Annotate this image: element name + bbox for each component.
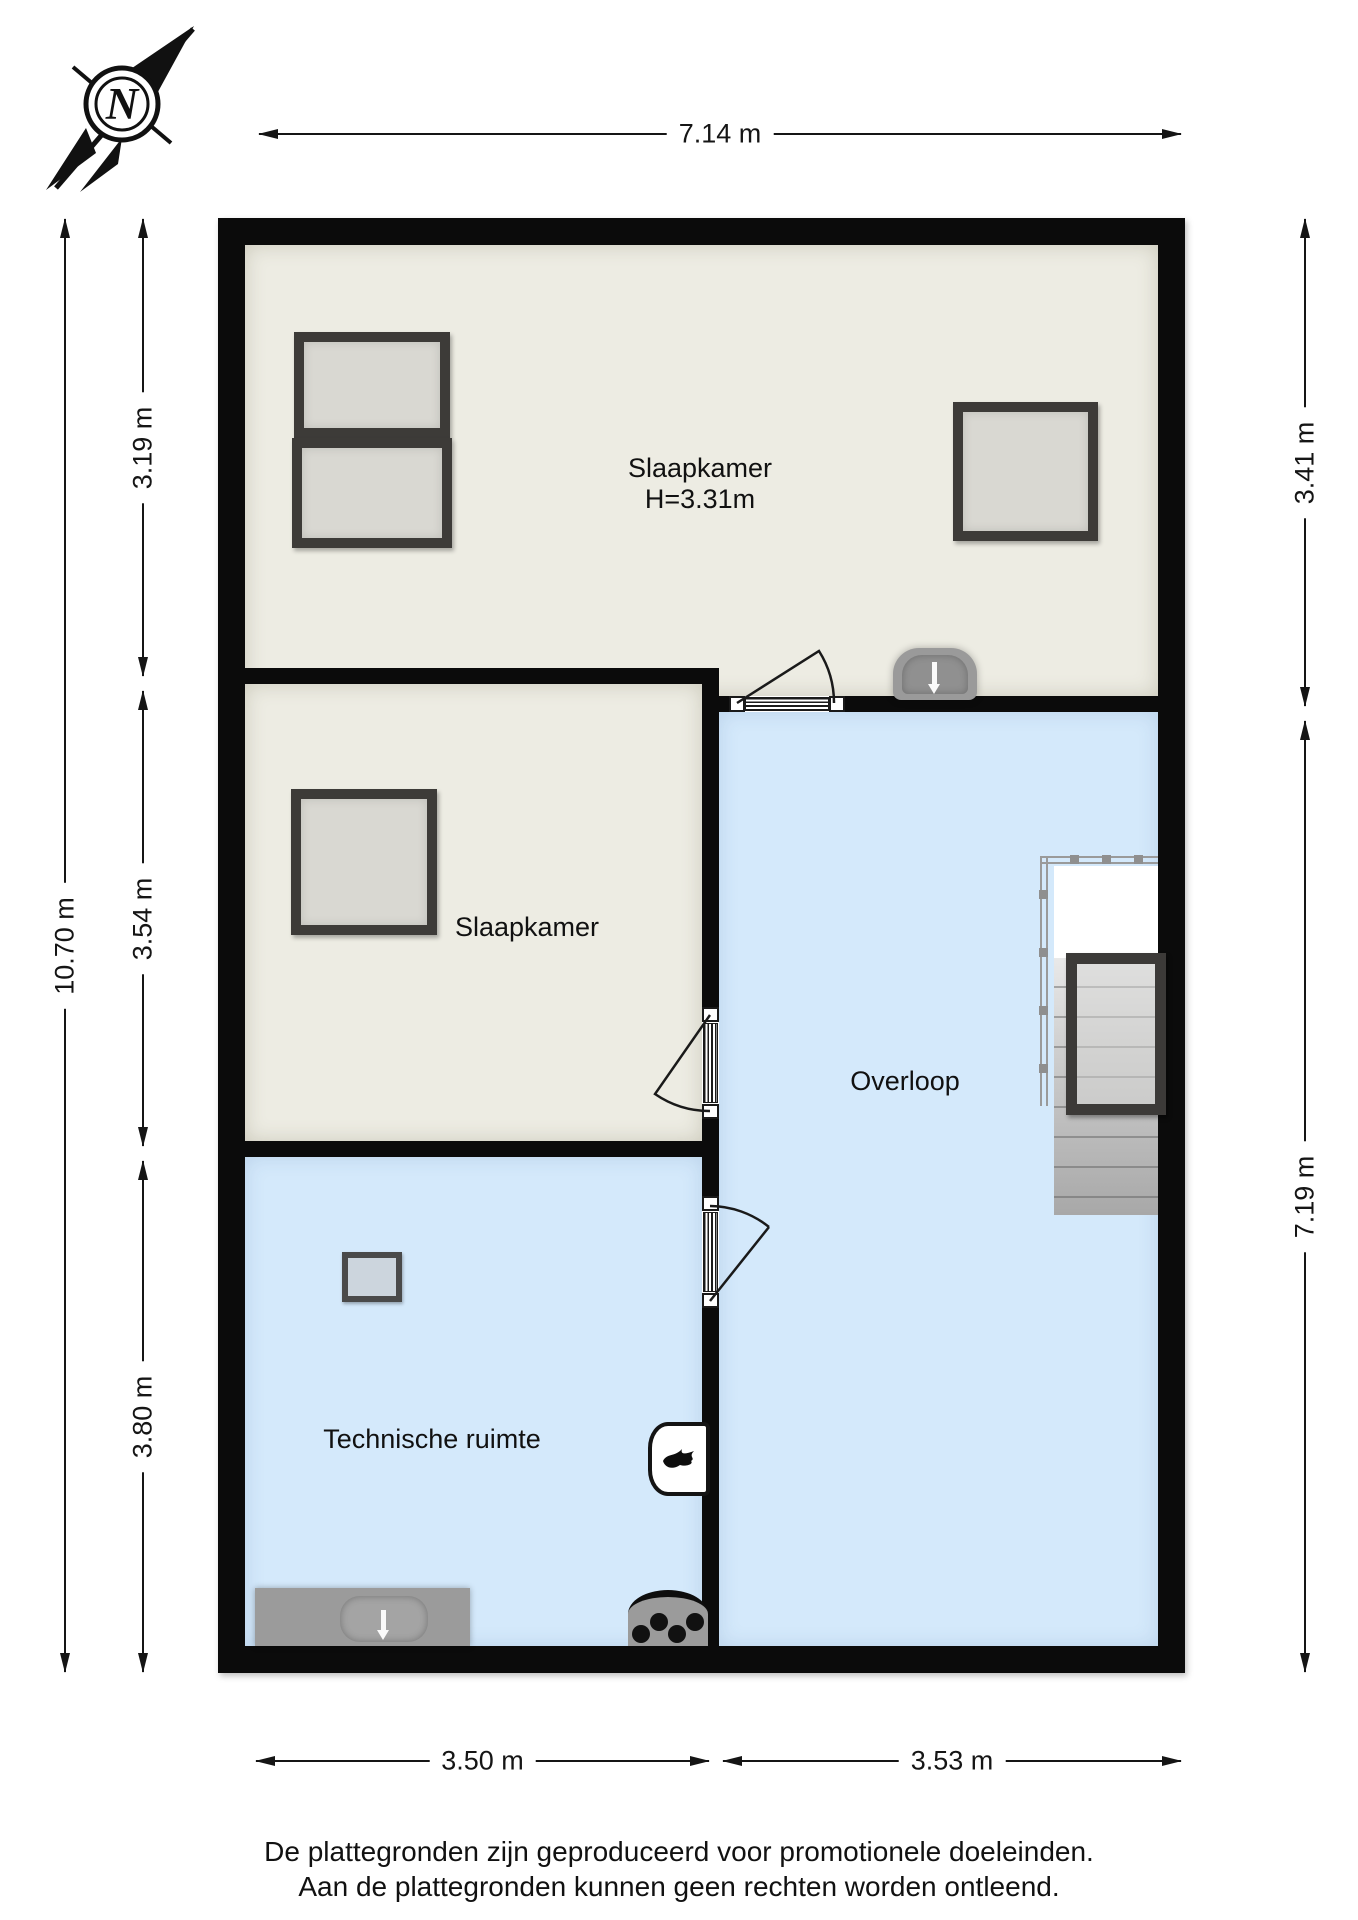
railing-post	[1070, 855, 1079, 864]
faucet-icon	[932, 662, 937, 684]
window-technische-ruimte	[342, 1252, 402, 1302]
roof-window-slaapkamer-mid	[291, 789, 437, 935]
heating-manifold	[628, 1590, 708, 1646]
railing-post	[1039, 1006, 1048, 1015]
door-slaapkamer-mid-jamb-bottom	[702, 1104, 719, 1119]
dimension-left-top-label: 3.19 m	[127, 392, 160, 503]
dimension-right-top-label: 3.41 m	[1289, 407, 1322, 518]
railing-post	[1102, 855, 1111, 864]
roof-window-top-left-lower	[292, 438, 452, 548]
flame-icon	[658, 1444, 700, 1474]
dimension-bottom-right-label: 3.53 m	[899, 1745, 1006, 1778]
disclaimer: De plattegronden zijn geproduceerd voor …	[0, 1834, 1358, 1904]
dimension-left-mid-label: 3.54 m	[127, 863, 160, 974]
roof-window-top-right	[953, 402, 1098, 541]
label-overloop: Overloop	[805, 1066, 1005, 1097]
door-slaapkamer-mid-leaf	[703, 1023, 718, 1103]
dimension-left-mid: 3.54 m	[129, 690, 157, 1147]
door-slaapkamer-mid-jamb-top	[702, 1007, 719, 1022]
dimension-left-total: 10.70 m	[51, 218, 79, 1673]
stairwell	[1054, 866, 1158, 958]
label-slaapkamer-top: Slaapkamer H=3.31m	[560, 453, 840, 515]
label-technische-ruimte: Technische ruimte	[302, 1424, 562, 1455]
counter-with-sink	[255, 1588, 470, 1646]
disclaimer-line-2: Aan de plattegronden kunnen geen rechten…	[0, 1869, 1358, 1904]
roof-window-top-left-upper	[294, 332, 450, 438]
room-technische-ruimte	[245, 1157, 702, 1646]
dimension-bottom-left: 3.50 m	[255, 1747, 710, 1775]
dimension-left-total-label: 10.70 m	[49, 883, 82, 1009]
wall-vertical-center	[702, 668, 719, 1646]
dimension-bottom-left-label: 3.50 m	[429, 1745, 536, 1778]
door-technische-jamb-bottom	[702, 1293, 719, 1308]
dimension-left-top: 3.19 m	[129, 218, 157, 677]
dimension-bottom-right: 3.53 m	[722, 1747, 1182, 1775]
railing-post	[1039, 948, 1048, 957]
sink-slaapkamer-top	[893, 648, 977, 700]
dimension-right-bottom-label: 7.19 m	[1289, 1141, 1322, 1252]
door-slaapkamer-top-jamb-right	[829, 696, 845, 712]
railing-post	[1039, 1064, 1048, 1073]
wall-mid-tech-divider	[218, 1141, 702, 1157]
boiler	[648, 1422, 710, 1496]
floorplan-page: N 7.14 m 10.70 m 3.19 m 3.54 m 3.80 m 3.…	[0, 0, 1358, 1920]
dimension-left-bottom-label: 3.80 m	[127, 1361, 160, 1472]
roof-window-over-stairs	[1066, 953, 1166, 1115]
dimension-top: 7.14 m	[258, 120, 1182, 148]
door-slaapkamer-top-leaf	[745, 697, 829, 711]
railing-post	[1134, 855, 1143, 864]
wall-slaapkamers-divider	[218, 668, 719, 684]
compass-letter: N	[105, 79, 140, 129]
dimension-right-top: 3.41 m	[1291, 218, 1319, 707]
door-technische-leaf	[703, 1212, 718, 1292]
disclaimer-line-1: De plattegronden zijn geproduceerd voor …	[0, 1834, 1358, 1869]
room-height-note: H=3.31m	[560, 484, 840, 515]
faucet-icon	[381, 1610, 386, 1630]
railing-post	[1039, 890, 1048, 899]
door-slaapkamer-top-jamb-left	[729, 696, 745, 712]
label-slaapkamer-mid: Slaapkamer	[427, 912, 627, 943]
room-name: Slaapkamer	[560, 453, 840, 484]
dimension-right-bottom: 7.19 m	[1291, 720, 1319, 1673]
dimension-left-bottom: 3.80 m	[129, 1160, 157, 1673]
dimension-top-label: 7.14 m	[667, 118, 774, 151]
compass-north-icon: N	[26, 10, 218, 202]
door-technische-jamb-top	[702, 1196, 719, 1211]
